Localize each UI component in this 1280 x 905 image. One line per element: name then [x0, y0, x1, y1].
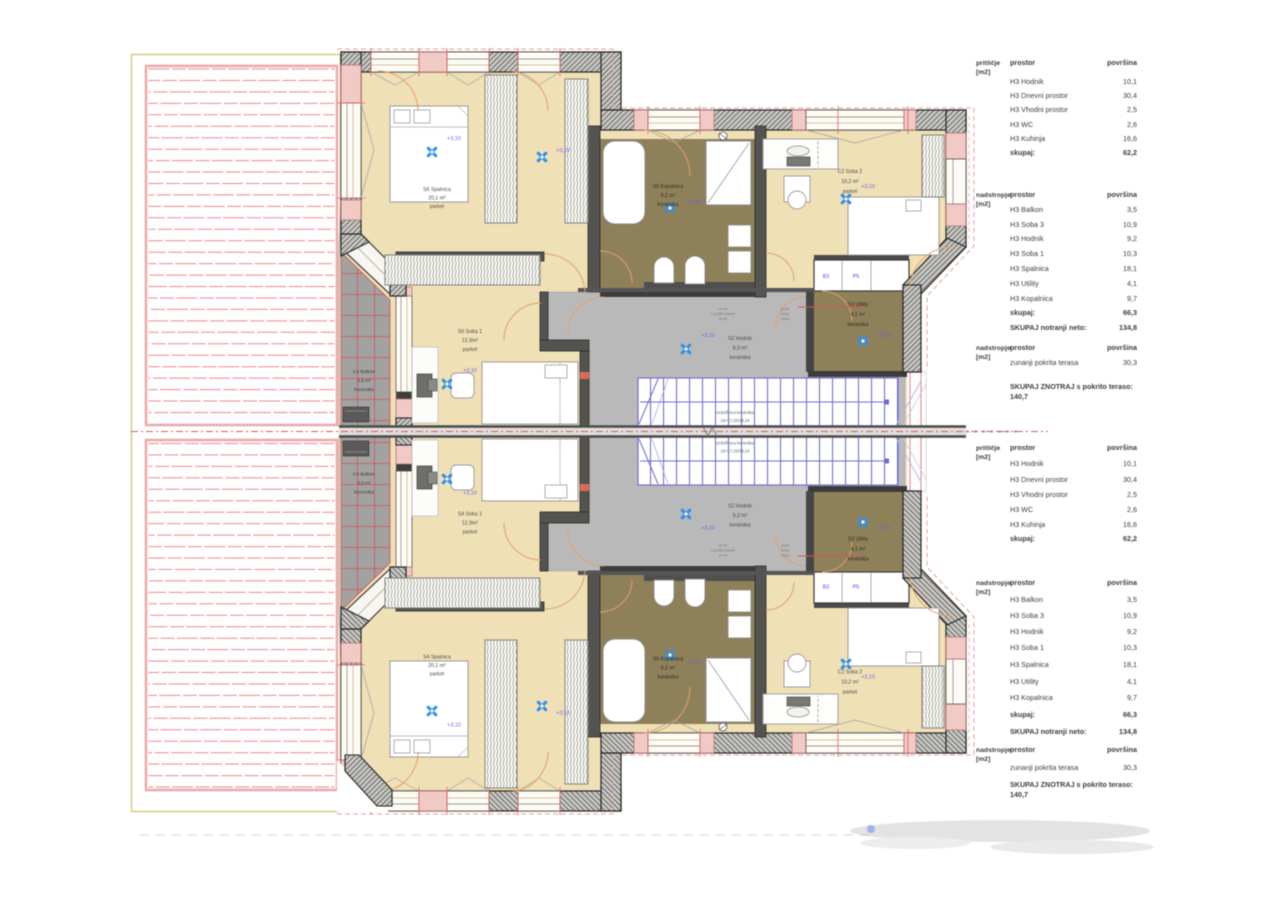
svg-text:H3 Kopalnica: H3 Kopalnica — [1010, 693, 1053, 702]
svg-text:10,3: 10,3 — [1123, 249, 1137, 258]
svg-text:strop: strop — [781, 549, 789, 553]
svg-text:S9 Kopalnica: S9 Kopalnica — [653, 184, 684, 190]
svg-text:12,9m²: 12,9m² — [462, 338, 478, 344]
svg-text:zidov: zidov — [781, 554, 790, 558]
svg-text:prost: prost — [781, 307, 789, 311]
svg-text:H3 Dnevni prostor: H3 Dnevni prostor — [1010, 475, 1069, 484]
svg-text:10,2 m²: 10,2 m² — [841, 680, 859, 686]
svg-text:+3,10: +3,10 — [687, 199, 701, 205]
svg-text:parket: parket — [430, 204, 445, 210]
svg-text:140,7: 140,7 — [1010, 790, 1028, 799]
svg-text:20,1 m²: 20,1 m² — [428, 196, 446, 202]
svg-text:12,9m²: 12,9m² — [462, 521, 478, 527]
svg-text:3,5 m²: 3,5 m² — [357, 378, 371, 384]
svg-text:keramika: keramika — [657, 202, 678, 208]
svg-text:pritličje: pritličje — [976, 60, 1000, 67]
svg-text:površina: površina — [1107, 343, 1138, 352]
svg-text:134,8: 134,8 — [1119, 727, 1137, 736]
svg-text:16×17,25/28,24: 16×17,25/28,24 — [720, 449, 750, 454]
svg-text:3,5 m²: 3,5 m² — [357, 481, 371, 487]
svg-text:keramika: keramika — [847, 557, 868, 563]
svg-text:+3,10: +3,10 — [687, 660, 701, 666]
svg-text:P5: P5 — [853, 274, 860, 280]
svg-text:prostor: prostor — [1010, 58, 1035, 67]
svg-text:površina: površina — [1107, 190, 1138, 199]
svg-text:parket: parket — [843, 189, 858, 195]
svg-text:66,3: 66,3 — [1123, 308, 1137, 317]
svg-text:16,6: 16,6 — [1123, 134, 1137, 143]
svg-text:4,1: 4,1 — [1127, 677, 1137, 686]
svg-text:pritličje: pritličje — [976, 445, 1000, 452]
svg-text:SKUPAJ notranji neto:: SKUPAJ notranji neto: — [1010, 727, 1087, 736]
svg-text:zunanji pokrita terasa: zunanji pokrita terasa — [1010, 763, 1078, 772]
svg-text:H3 Balkon: H3 Balkon — [1010, 595, 1043, 604]
svg-text:+3,10: +3,10 — [447, 136, 461, 142]
svg-text:3,5: 3,5 — [1127, 205, 1137, 214]
svg-text:S6 Spalnica: S6 Spalnica — [423, 187, 451, 193]
svg-text:2,5: 2,5 — [1127, 490, 1137, 499]
svg-text:[m2]: [m2] — [976, 756, 990, 763]
svg-text:H3 Soba 3: H3 Soba 3 — [1010, 611, 1044, 620]
svg-text:4,1 m²: 4,1 m² — [851, 312, 866, 318]
svg-text:S9 Kopalnica: S9 Kopalnica — [653, 657, 684, 663]
svg-text:parket: parket — [463, 347, 478, 353]
svg-text:H3 Vhodni prostor: H3 Vhodni prostor — [1010, 105, 1069, 114]
svg-text:2,6: 2,6 — [1127, 505, 1137, 514]
svg-text:keramika: keramika — [729, 523, 750, 529]
svg-text:S4 Soba 1: S4 Soba 1 — [458, 512, 482, 518]
svg-text:[m2]: [m2] — [976, 454, 990, 461]
svg-text:+3,10: +3,10 — [447, 723, 461, 729]
svg-text:10,1: 10,1 — [1123, 77, 1137, 86]
svg-text:B3: B3 — [823, 274, 830, 280]
svg-text:S2 Hodnik: S2 Hodnik — [728, 336, 752, 342]
svg-text:za vrt: za vrt — [719, 307, 728, 311]
svg-text:H3 Soba 1: H3 Soba 1 — [1010, 249, 1044, 258]
svg-text:[m2]: [m2] — [976, 69, 990, 76]
svg-text:66,3: 66,3 — [1123, 710, 1137, 719]
svg-text:20,1 m²: 20,1 m² — [428, 663, 446, 669]
svg-text:keramika: keramika — [657, 675, 678, 681]
svg-text:B3: B3 — [823, 585, 830, 591]
svg-text:+3,10: +3,10 — [556, 711, 570, 717]
svg-text:16,6: 16,6 — [1123, 520, 1137, 529]
svg-text:30,4: 30,4 — [1123, 475, 1137, 484]
svg-text:16×17,25/28,24: 16×17,25/28,24 — [720, 418, 750, 423]
svg-text:2,6: 2,6 — [1127, 120, 1137, 129]
svg-text:S3 Utility: S3 Utility — [848, 537, 869, 543]
svg-text:parket: parket — [463, 530, 478, 536]
svg-text:za vrt: za vrt — [719, 544, 728, 548]
svg-text:+3,10: +3,10 — [701, 333, 715, 339]
svg-text:+3,10: +3,10 — [861, 184, 875, 190]
svg-text:18,1: 18,1 — [1123, 660, 1137, 669]
svg-text:prostor: prostor — [1010, 190, 1035, 199]
svg-text:zunanji pokrita terasa: zunanji pokrita terasa — [1010, 358, 1078, 367]
svg-text:strop: strop — [781, 312, 789, 316]
svg-text:10,9: 10,9 — [1123, 611, 1137, 620]
svg-text:S4 Spalnica: S4 Spalnica — [423, 655, 451, 661]
svg-text:H3 Vhodni prostor: H3 Vhodni prostor — [1010, 490, 1069, 499]
svg-text:H3 Kuhinja: H3 Kuhinja — [1010, 134, 1045, 143]
svg-text:+3,10: +3,10 — [463, 491, 477, 497]
svg-text:9,2: 9,2 — [1127, 627, 1137, 636]
svg-text:prostor: prostor — [1010, 578, 1035, 587]
svg-text:9,2 m²: 9,2 m² — [661, 193, 676, 199]
svg-text:vzdolžnica keramika: vzdolžnica keramika — [716, 441, 754, 446]
svg-text:SKUPAJ notranji neto:: SKUPAJ notranji neto: — [1010, 323, 1087, 332]
svg-text:2,5: 2,5 — [1127, 105, 1137, 114]
svg-text:nadstropje: nadstropje — [976, 747, 1011, 754]
svg-text:4,1 m²: 4,1 m² — [851, 547, 866, 553]
svg-text:C2 Soba 2: C2 Soba 2 — [838, 169, 863, 175]
svg-text:+3,10: +3,10 — [877, 333, 891, 339]
svg-text:9,2 m²: 9,2 m² — [661, 666, 676, 672]
svg-text:za vrt: za vrt — [719, 554, 728, 558]
svg-text:+3,10: +3,10 — [861, 675, 875, 681]
svg-text:140,7: 140,7 — [1010, 392, 1028, 401]
svg-text:S2 Hodnik: S2 Hodnik — [728, 504, 752, 510]
svg-text:s pohišt maketi: s pohišt maketi — [711, 549, 735, 553]
svg-text:30,3: 30,3 — [1123, 358, 1137, 367]
svg-text:S3 Utility: S3 Utility — [848, 302, 869, 308]
svg-text:P5: P5 — [853, 585, 860, 591]
svg-text:10,1: 10,1 — [1123, 459, 1137, 468]
svg-text:H3 WC: H3 WC — [1010, 120, 1033, 129]
svg-text:skupaj:: skupaj: — [1010, 308, 1035, 317]
svg-text:C2 Soba 2: C2 Soba 2 — [838, 670, 863, 676]
svg-text:parket: parket — [843, 690, 858, 696]
svg-text:9,2: 9,2 — [1127, 234, 1137, 243]
svg-text:keramika: keramika — [729, 355, 750, 361]
svg-text:keramika: keramika — [354, 387, 374, 393]
svg-text:SKUPAJ ZNOTRAJ s pokrito teras: SKUPAJ ZNOTRAJ s pokrito teraso: — [1010, 780, 1133, 789]
svg-text:134,8: 134,8 — [1119, 323, 1137, 332]
svg-text:18,1: 18,1 — [1123, 264, 1137, 273]
svg-text:H3 Spalnica: H3 Spalnica — [1010, 660, 1049, 669]
svg-text:H3 Dnevni prostor: H3 Dnevni prostor — [1010, 91, 1069, 100]
svg-text:62,2: 62,2 — [1123, 148, 1137, 157]
svg-text:4,1: 4,1 — [1127, 279, 1137, 288]
svg-text:površina: površina — [1107, 58, 1138, 67]
svg-text:H3 Utility: H3 Utility — [1010, 677, 1039, 686]
svg-text:prostor: prostor — [1010, 343, 1035, 352]
svg-text:H3 Hodnik: H3 Hodnik — [1010, 459, 1044, 468]
svg-text:10,3: 10,3 — [1123, 643, 1137, 652]
svg-text:nadstropje: nadstropje — [976, 345, 1011, 352]
svg-text:9,3 m²: 9,3 m² — [733, 346, 748, 352]
svg-text:10,2 m²: 10,2 m² — [841, 179, 859, 185]
svg-text:H3 Soba 3: H3 Soba 3 — [1010, 220, 1044, 229]
svg-text:prost: prost — [781, 544, 789, 548]
svg-text:površina: površina — [1107, 745, 1138, 754]
svg-text:H3 Spalnica: H3 Spalnica — [1010, 264, 1049, 273]
svg-text:C4 Balkon: C4 Balkon — [353, 472, 375, 478]
svg-text:C4 Balkon: C4 Balkon — [353, 369, 375, 375]
svg-text:skupaj:: skupaj: — [1010, 148, 1035, 157]
svg-text:prostor: prostor — [1010, 443, 1035, 452]
svg-text:3,5: 3,5 — [1127, 595, 1137, 604]
svg-text:9,7: 9,7 — [1127, 693, 1137, 702]
svg-text:S6 Soba 1: S6 Soba 1 — [458, 329, 482, 335]
svg-text:H3 Hodnik: H3 Hodnik — [1010, 627, 1044, 636]
svg-text:skupaj:: skupaj: — [1010, 710, 1035, 719]
svg-text:vzdolžnica keramika: vzdolžnica keramika — [716, 410, 754, 415]
svg-text:H3 Kuhinja: H3 Kuhinja — [1010, 520, 1045, 529]
svg-text:H3 Utility: H3 Utility — [1010, 279, 1039, 288]
svg-text:površina: površina — [1107, 443, 1138, 452]
svg-text:skupaj:: skupaj: — [1010, 534, 1035, 543]
svg-text:H3 Balkon: H3 Balkon — [1010, 205, 1043, 214]
svg-text:30,4: 30,4 — [1123, 91, 1137, 100]
svg-text:H3 Soba 1: H3 Soba 1 — [1010, 643, 1044, 652]
svg-text:keramika: keramika — [354, 490, 374, 496]
svg-text:s pohišt maketi: s pohišt maketi — [711, 312, 735, 316]
svg-text:62,2: 62,2 — [1123, 534, 1137, 543]
svg-text:prostor: prostor — [1010, 745, 1035, 754]
svg-text:[m2]: [m2] — [976, 589, 990, 596]
svg-text:nadstropje: nadstropje — [976, 580, 1011, 587]
svg-text:9,3 m²: 9,3 m² — [733, 513, 748, 519]
svg-text:parket: parket — [430, 672, 445, 678]
svg-text:H3 WC: H3 WC — [1010, 505, 1033, 514]
svg-text:+3,10: +3,10 — [463, 368, 477, 374]
svg-text:10,9: 10,9 — [1123, 220, 1137, 229]
svg-text:H3 Kopalnica: H3 Kopalnica — [1010, 294, 1053, 303]
svg-text:keramika: keramika — [847, 322, 868, 328]
svg-text:9,7: 9,7 — [1127, 294, 1137, 303]
svg-text:[m2]: [m2] — [976, 201, 990, 208]
svg-text:H3 Hodnik: H3 Hodnik — [1010, 234, 1044, 243]
svg-text:[m2]: [m2] — [976, 354, 990, 361]
svg-text:30,3: 30,3 — [1123, 763, 1137, 772]
svg-text:površina: površina — [1107, 578, 1138, 587]
svg-text:+3,10: +3,10 — [877, 526, 891, 532]
svg-text:+3,10: +3,10 — [701, 526, 715, 532]
svg-text:H3 Hodnik: H3 Hodnik — [1010, 77, 1044, 86]
svg-text:+3,10: +3,10 — [556, 148, 570, 154]
svg-text:SKUPAJ ZNOTRAJ s pokrito teras: SKUPAJ ZNOTRAJ s pokrito teraso: — [1010, 382, 1133, 391]
svg-text:za vrt: za vrt — [719, 317, 728, 321]
svg-text:nadstropje: nadstropje — [976, 192, 1011, 199]
svg-text:zidov: zidov — [781, 317, 790, 321]
